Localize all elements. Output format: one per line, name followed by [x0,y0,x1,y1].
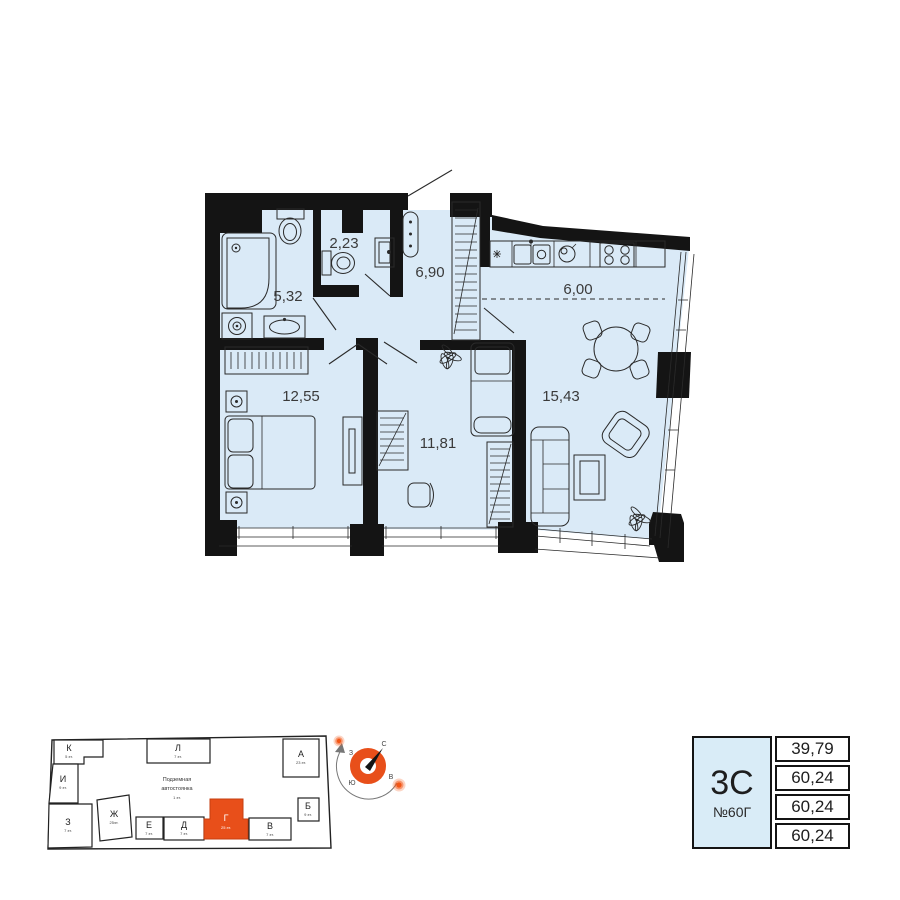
apartment-type-cell: 3С №60Г [692,736,772,849]
apartment-areas-column: 39,79 60,24 60,24 60,24 [775,736,850,849]
entrance-door [408,170,452,196]
parking-label-line2: автостоянка [161,786,193,792]
apartment-info-card[interactable]: 3С №60Г 39,79 60,24 60,24 60,24 [692,736,850,849]
section-floors: 9 эт. [59,785,67,790]
section-floors: 7 эт. [64,828,72,833]
section-letter: Е [146,820,152,830]
sun-glow-east [393,779,406,792]
compass-east-label: В [389,774,394,781]
section-letter: К [66,743,72,753]
section-floors: 7 эт. [145,831,153,836]
section-letter: Б [305,801,311,811]
area-value: 60,24 [775,794,850,820]
apartment-type: 3С [710,766,753,800]
area-value: 60,24 [775,765,850,791]
room-area-label: 11,81 [420,435,456,452]
bedroom-area-label: 12,55 [282,388,320,405]
section-letter: Д [181,820,187,830]
area-value: 39,79 [775,736,850,762]
compass-south-label: Ю [348,780,355,787]
apartment-number: №60Г [713,804,751,820]
living-area-label: 15,43 [542,388,580,405]
section-floors: 25 эт. [221,825,231,830]
compass-north-label: С [381,741,386,748]
section-floors: 9 эт. [304,812,312,817]
section-letter: И [60,774,66,784]
section-letter: З [65,817,70,827]
compass-west-label: З [349,750,353,757]
section-floors: 23 эт. [296,760,306,765]
hall-area-label: 6,90 [415,264,444,281]
section-letter: Ж [110,809,119,819]
site-plan: К 5 эт. И 9 эт. З 7 эт. Ж 25эт. Е 7 эт. … [48,736,331,849]
parking-label-line1: Подземная [163,777,191,783]
vent-symbol [493,250,501,258]
bathroom-area-label: 5,32 [273,288,302,305]
section-floors: 5 эт. [65,754,73,759]
parking-floors: 1 эт. [173,795,181,800]
apartment-floor [219,210,689,540]
section-floors: 7 эт. [174,754,182,759]
section-letter: Л [175,743,181,753]
section-floors: 7 эт. [180,831,188,836]
compass: С В Ю З [334,736,406,800]
section-letter: В [267,821,273,831]
sun-glow-west [334,736,345,747]
section-letter: А [298,749,304,759]
section-floors: 7 эт. [266,832,274,837]
section-letter-highlighted: Г [224,813,229,823]
wc-area-label: 2,23 [329,235,358,252]
section-floors: 25эт. [110,820,119,825]
area-value: 60,24 [775,823,850,849]
kitchen-area-label: 6,00 [563,281,592,298]
